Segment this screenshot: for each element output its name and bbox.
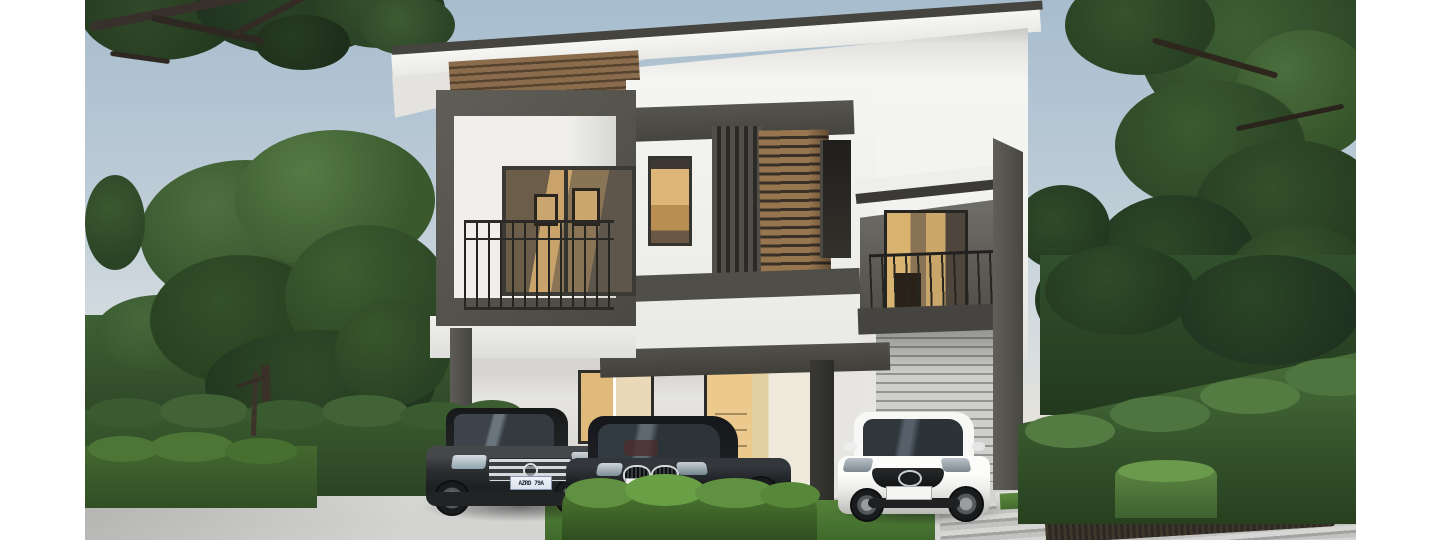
architectural-rendering: AZRD 79A EVERMOTION [0,0,1440,540]
headlight-right [941,458,972,472]
hedge-bump [1110,396,1210,432]
left-margin [0,0,85,540]
interior-seats [624,440,658,456]
hedge-bump [322,395,408,427]
right-margin [1356,0,1440,540]
branch-foliage [255,15,350,70]
narrow-window [648,156,692,246]
windshield [863,419,963,457]
bush-bump [565,478,635,508]
bush-bump [760,482,820,508]
hedge-bump [245,400,327,430]
hedge-bump [150,432,234,462]
wing-floor-band [858,303,1009,334]
bush-bump [625,474,705,506]
hedge-bump [225,438,297,464]
hedge-bump [88,398,166,428]
mazda-emblem [898,470,922,487]
license-plate [886,486,932,500]
hedge-bump [1025,414,1115,448]
side-mirror [972,442,985,451]
windshield [454,414,554,448]
windshield [598,424,720,460]
tree-canopy-left-edge [85,175,145,270]
hedge-box-top [1118,460,1214,482]
corner-window [820,140,851,258]
carport-column-right [810,360,834,500]
balcony-railing [464,220,614,310]
side-mirror [844,442,857,451]
hedge-bump [1200,378,1300,414]
hedge-bump [160,394,248,428]
headlight-left [842,458,873,472]
lower-right-trees [1180,255,1360,365]
license-plate: AZRD 79A [510,476,552,490]
balcony-frame [436,90,636,326]
headlight-left [596,463,624,476]
headlight-left [451,455,487,469]
hedge-bump [88,436,158,462]
car-mazda [838,410,994,522]
vertical-louvers [712,126,762,286]
headlight-right [676,462,708,475]
balcony-mid-rail [464,238,614,240]
lower-right-trees [1045,245,1195,335]
